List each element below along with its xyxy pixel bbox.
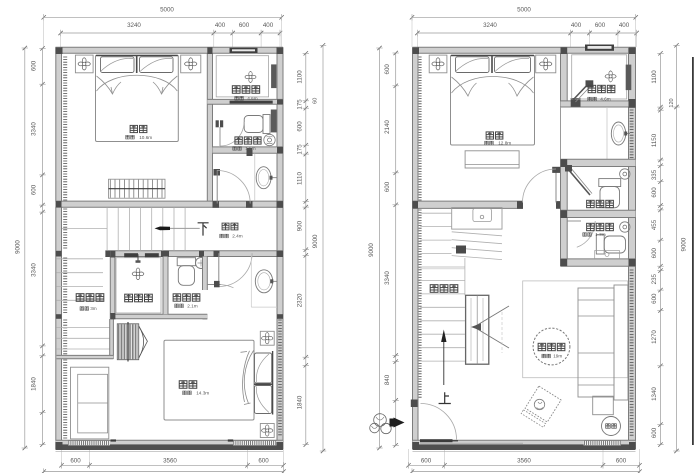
svg-text:1.5m: 1.5m [245,146,256,151]
svg-text:2.4m: 2.4m [232,234,243,239]
svg-text:600: 600 [297,121,304,132]
svg-text:1340: 1340 [651,387,658,401]
svg-text:600: 600 [651,427,658,438]
svg-text:600: 600 [651,293,658,304]
svg-text:5000: 5000 [517,7,531,14]
svg-text:14.3m: 14.3m [196,391,209,396]
svg-text:600: 600 [70,457,81,464]
svg-text:1150: 1150 [651,133,658,147]
svg-text:3340: 3340 [31,263,38,277]
svg-text:60: 60 [313,98,319,104]
svg-text:1270: 1270 [651,330,658,344]
svg-text:600: 600 [616,457,627,464]
svg-text:335: 335 [651,169,658,180]
svg-text:9000: 9000 [15,240,22,254]
svg-text:1100: 1100 [651,70,658,84]
svg-text:600: 600 [595,22,606,29]
svg-text:400: 400 [215,22,226,29]
svg-text:3240: 3240 [127,22,141,29]
svg-text:3m: 3m [90,306,97,311]
svg-text:2320: 2320 [297,293,304,307]
svg-text:600: 600 [239,22,250,29]
svg-text:3240: 3240 [483,22,497,29]
svg-text:600: 600 [384,181,391,192]
svg-text:600: 600 [31,184,38,195]
svg-text:455: 455 [651,219,658,230]
svg-text:120: 120 [669,98,675,107]
svg-text:3560: 3560 [163,457,177,464]
svg-text:3340: 3340 [384,271,391,285]
svg-text:400: 400 [263,22,274,29]
svg-text:600: 600 [31,60,38,71]
svg-text:600: 600 [384,64,391,75]
svg-text:600: 600 [258,457,269,464]
svg-text:175: 175 [297,99,304,110]
svg-text:4.6m: 4.6m [600,97,611,102]
svg-text:19m: 19m [553,354,562,359]
svg-text:900: 900 [297,220,304,231]
svg-text:3340: 3340 [31,122,38,136]
svg-text:600: 600 [651,247,658,258]
svg-text:5000: 5000 [160,7,174,14]
svg-text:235: 235 [651,273,658,284]
svg-text:1840: 1840 [297,395,304,409]
svg-text:2140: 2140 [384,120,391,134]
svg-text:9000: 9000 [681,237,688,251]
svg-text:1110: 1110 [297,172,304,185]
svg-text:600: 600 [421,457,432,464]
svg-text:1.3m: 1.3m [595,232,606,237]
svg-text:840: 840 [384,374,391,385]
svg-text:4.6m: 4.6m [247,96,258,101]
svg-text:400: 400 [619,22,630,29]
svg-text:400: 400 [571,22,582,29]
svg-text:9000: 9000 [368,243,375,257]
svg-text:1840: 1840 [31,377,38,391]
svg-text:12.8m: 12.8m [498,141,511,146]
svg-text:600: 600 [651,187,658,198]
svg-text:1100: 1100 [297,70,304,84]
svg-text:10.6m: 10.6m [139,135,152,140]
svg-text:9000: 9000 [312,234,319,248]
svg-text:2.1m: 2.1m [187,304,198,309]
svg-text:175: 175 [297,144,304,155]
svg-text:3560: 3560 [517,457,531,464]
